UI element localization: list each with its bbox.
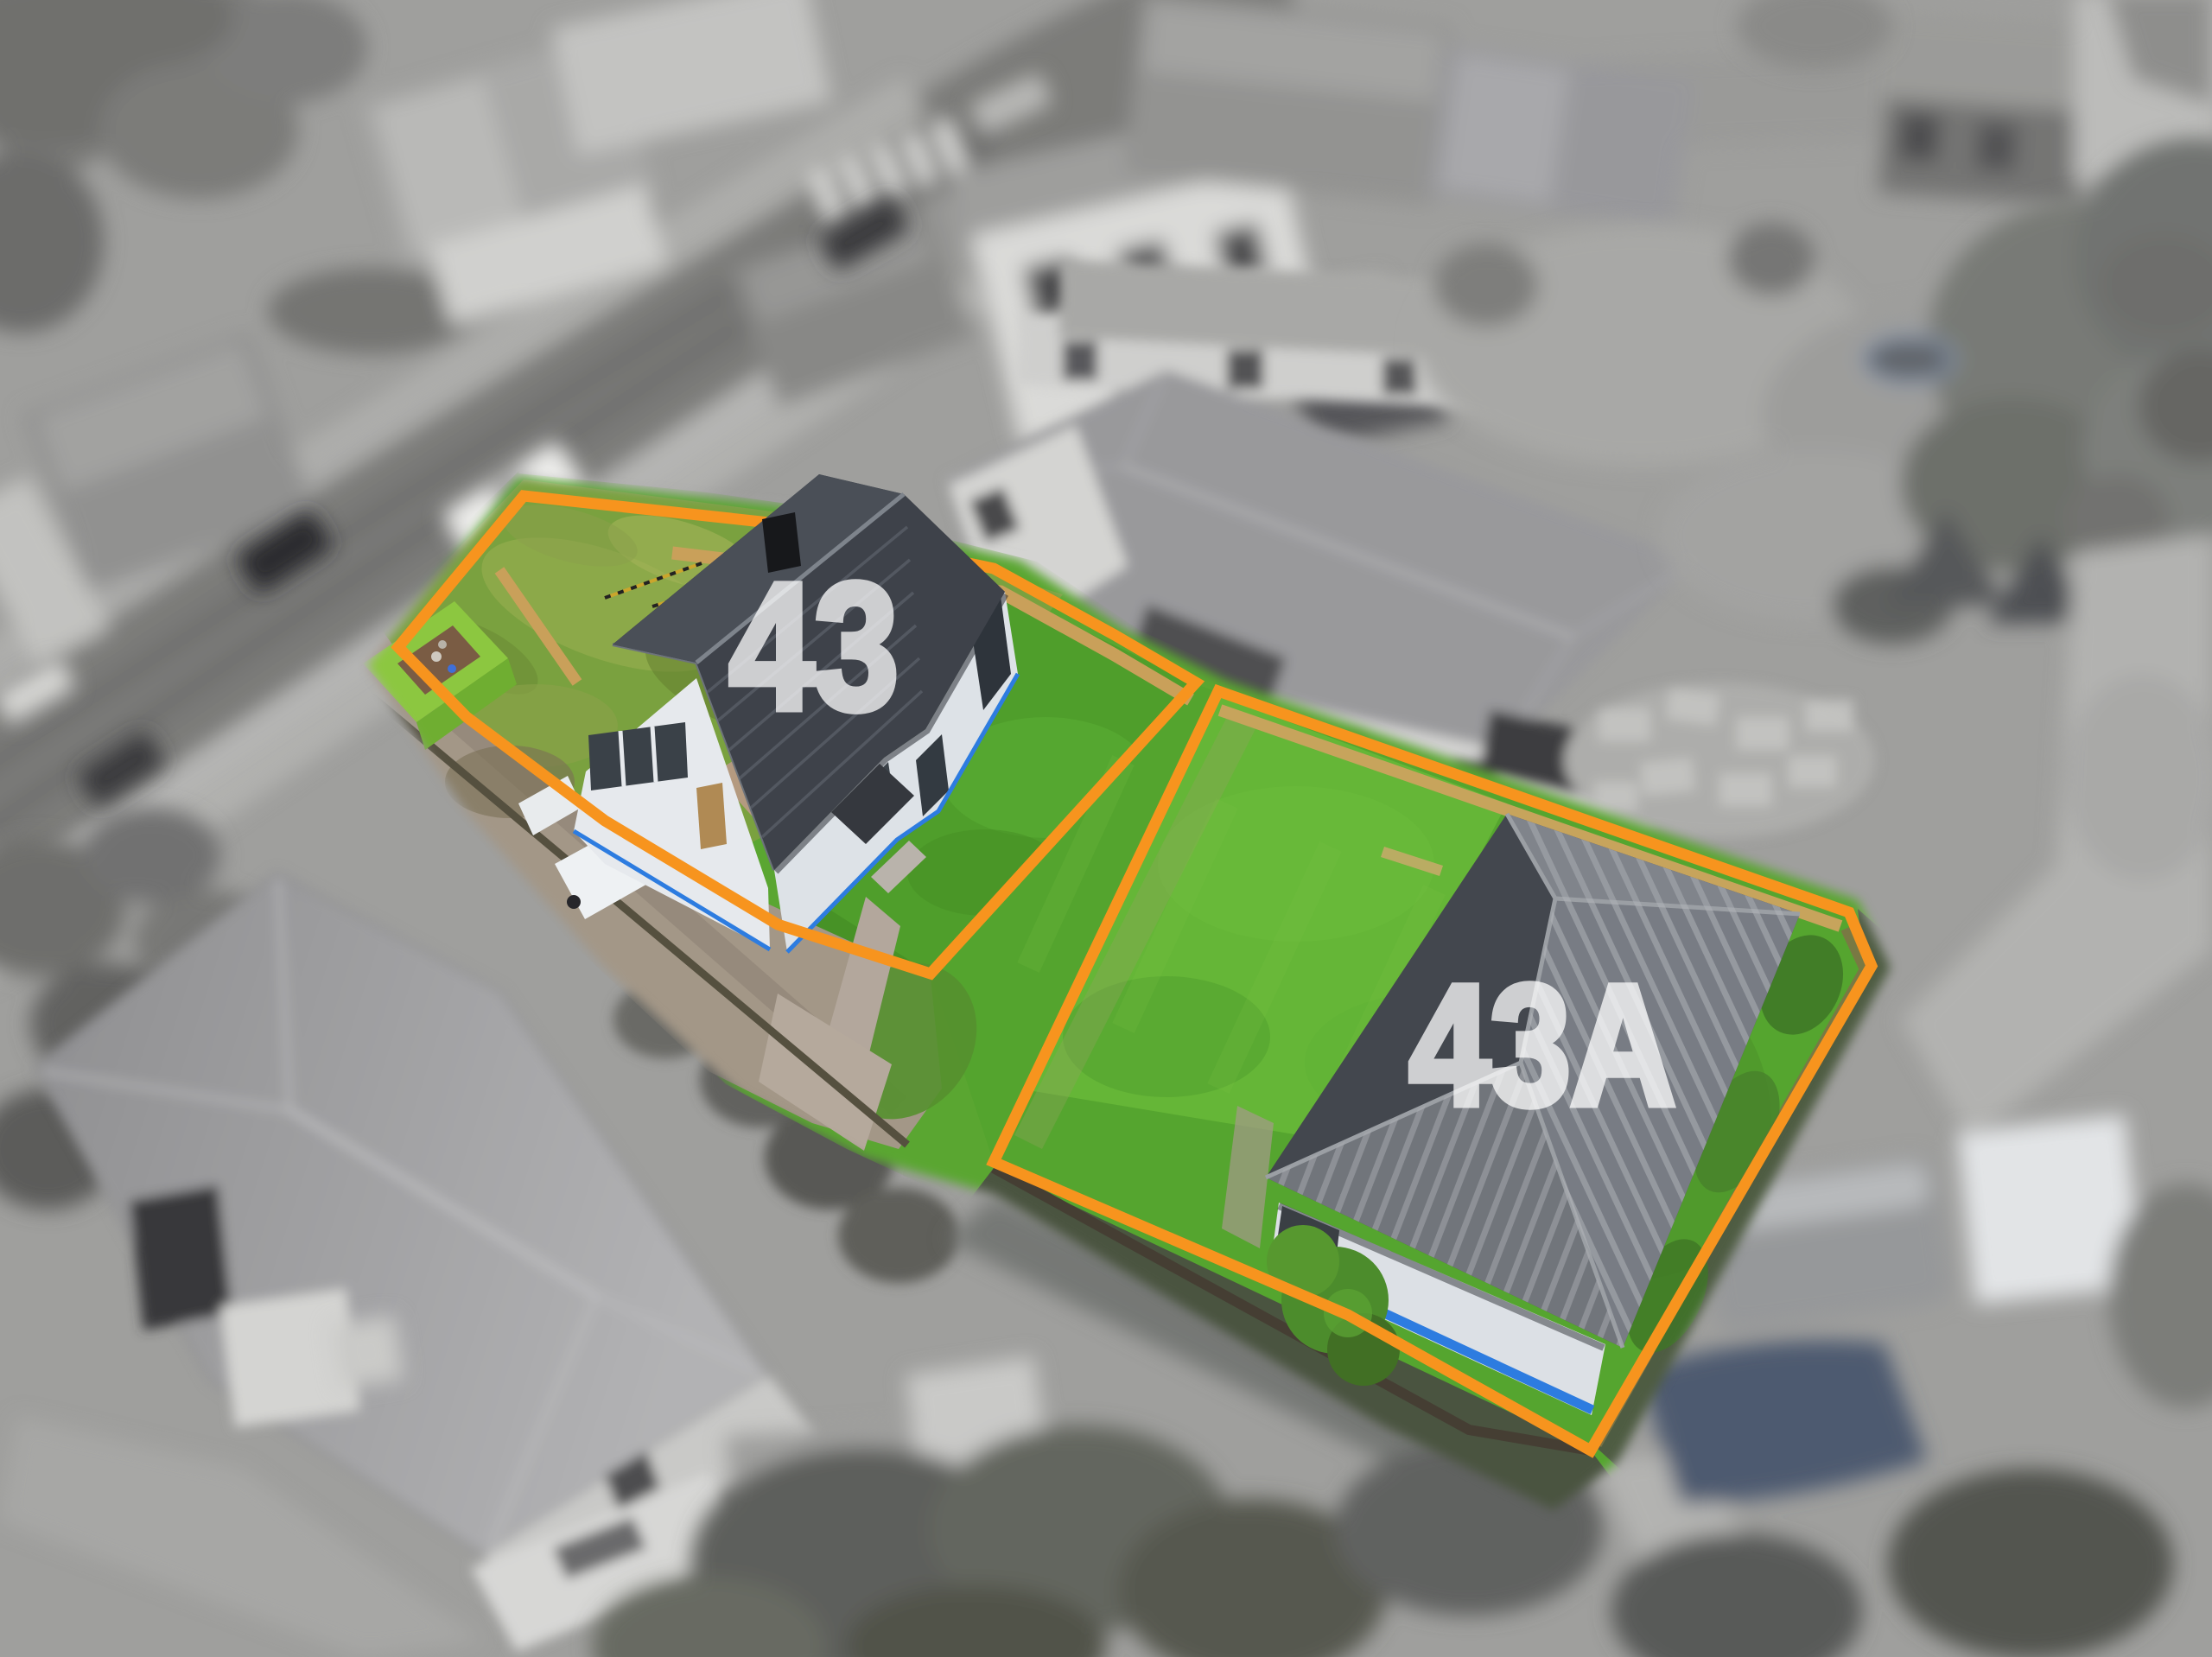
svg-text:43: 43	[729, 547, 899, 747]
svg-text:43A: 43A	[1409, 949, 1675, 1140]
